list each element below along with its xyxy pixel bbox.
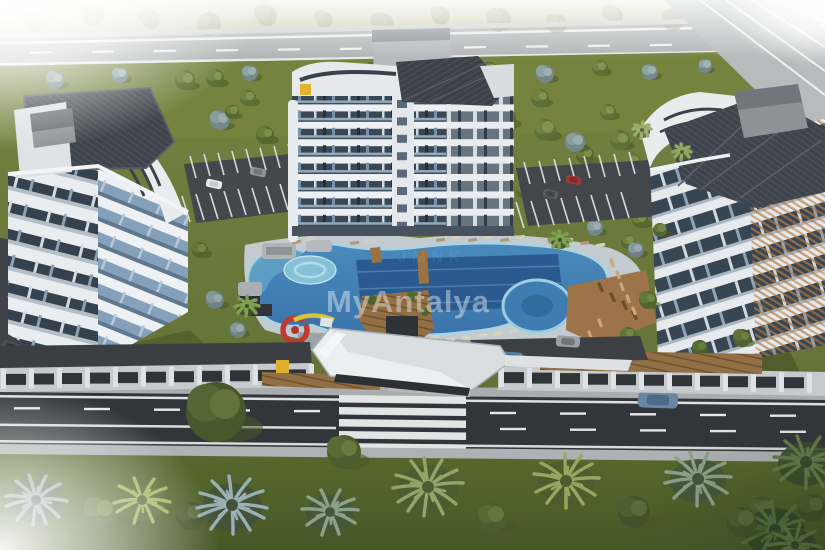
svg-text:JMNK: JMNK bbox=[398, 249, 466, 266]
svg-text:MyAntalya: MyAntalya bbox=[326, 284, 490, 319]
